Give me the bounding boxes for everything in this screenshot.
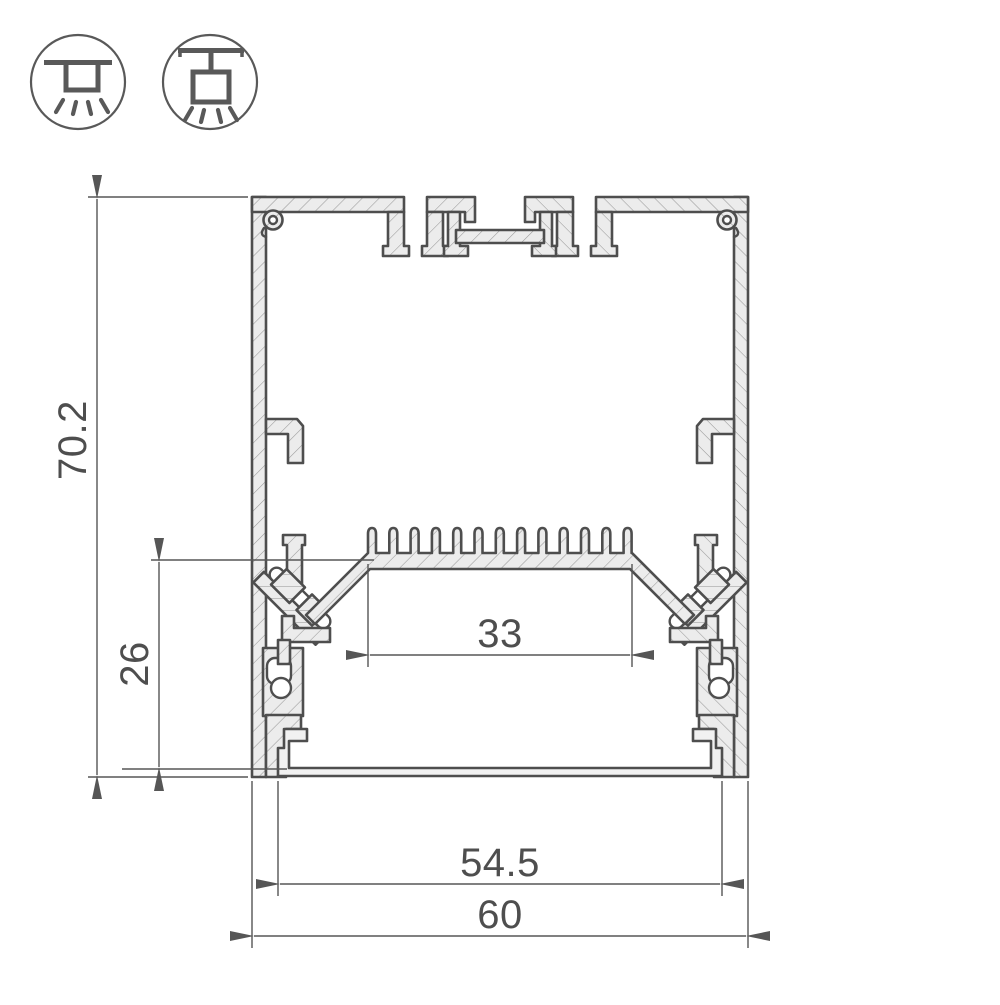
dim-54-5: 54.5 [278, 781, 722, 896]
center-web [456, 230, 544, 243]
light-ray [101, 100, 108, 112]
dim-33: 33 [368, 564, 632, 667]
dimension-value: 33 [477, 612, 523, 656]
technical-drawing-page: 70.2 26 33 54.5 60 [0, 0, 1000, 1000]
surface-mount-light-icon [31, 35, 125, 129]
wall-hook-upper [266, 419, 303, 463]
light-ray [56, 100, 63, 112]
profile-drawing-svg: 70.2 26 33 54.5 60 [0, 0, 1000, 1000]
light-ray [185, 108, 192, 120]
profile-right-half-mirror [525, 197, 748, 777]
lamp-box [193, 72, 229, 102]
dimension-value: 54.5 [460, 841, 540, 885]
light-ray [88, 102, 91, 114]
keyhole-hole [271, 678, 291, 698]
light-rays-icon [56, 100, 108, 114]
profile-left-half [252, 197, 475, 777]
dimension-value: 26 [113, 641, 157, 687]
dimension-value: 60 [477, 893, 523, 937]
light-rays-icon [185, 108, 237, 122]
diffuser-tray [278, 729, 722, 776]
light-ray [230, 108, 237, 120]
icon-circle [31, 35, 125, 129]
dimension-value: 70.2 [51, 400, 95, 480]
led-plate-heatsink-fins [306, 528, 694, 624]
dim-70-2: 70.2 [51, 197, 248, 777]
corner-screw-boss-hole [269, 216, 277, 224]
light-ray [201, 110, 204, 122]
lamp-box [66, 64, 98, 90]
light-ray [218, 110, 221, 122]
light-ray [73, 102, 76, 114]
mounting-slot-leg [383, 212, 409, 256]
pendant-light-icon [163, 35, 257, 129]
keyhole-tongue [278, 640, 290, 664]
